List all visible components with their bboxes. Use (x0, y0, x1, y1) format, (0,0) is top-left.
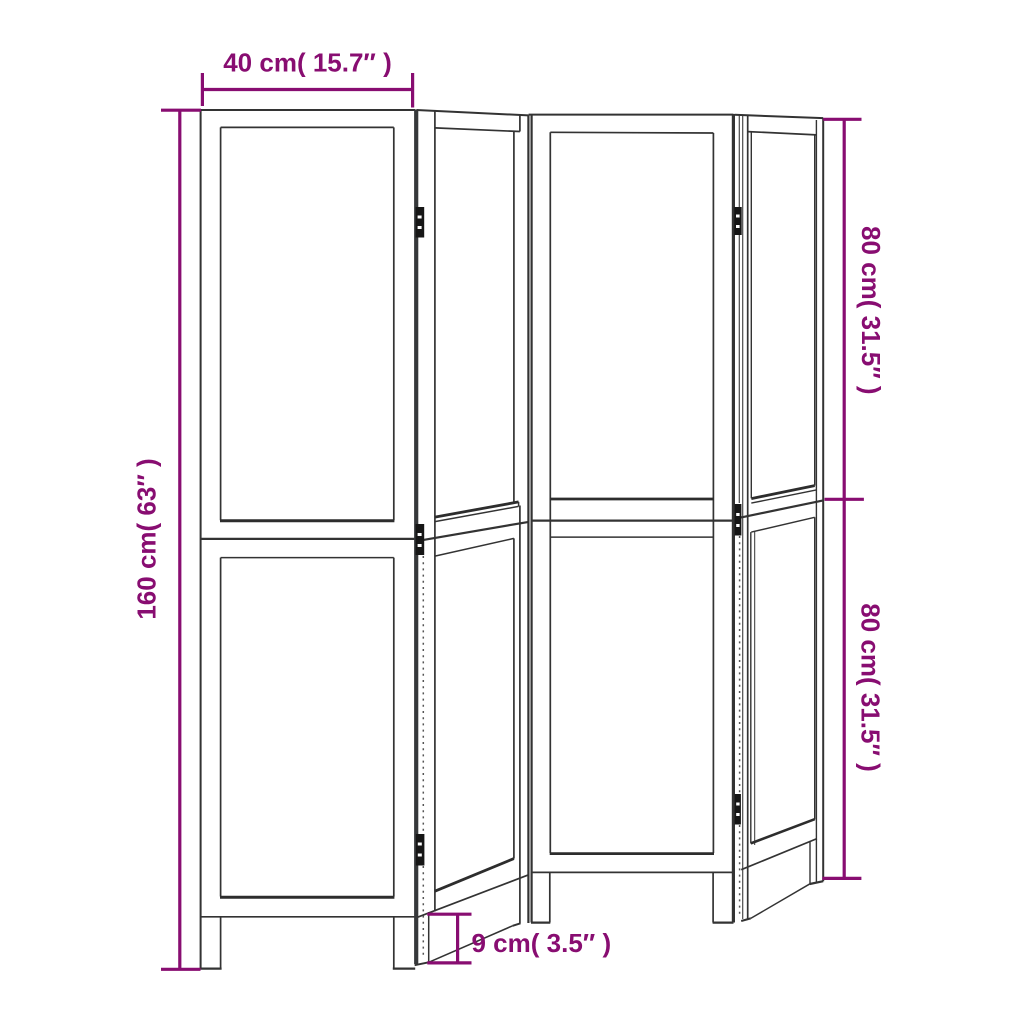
svg-text:80 cm( 31.5″ ): 80 cm( 31.5″ ) (856, 603, 886, 772)
svg-text:40 cm( 15.7″ ): 40 cm( 15.7″ ) (223, 48, 392, 78)
svg-text:9 cm( 3.5″ ): 9 cm( 3.5″ ) (472, 928, 612, 958)
svg-text:160 cm( 63″ ): 160 cm( 63″ ) (132, 458, 162, 619)
svg-text:80 cm( 31.5″ ): 80 cm( 31.5″ ) (856, 226, 886, 395)
